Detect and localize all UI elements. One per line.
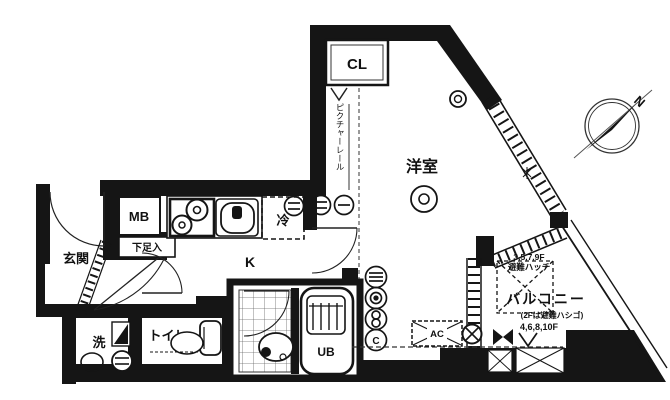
western-room-door: [312, 228, 357, 273]
laundry: 洗: [81, 322, 132, 371]
ladder-note-label: (2Fは避難ハシゴ): [521, 310, 584, 320]
closet-label: CL: [347, 56, 367, 73]
drain-symbol: [463, 325, 482, 344]
unit-bath: UB: [230, 282, 360, 378]
unit-bath-label: UB: [317, 345, 335, 359]
kitchen-label: K: [245, 254, 255, 270]
balcony-label: バルコニー: [506, 291, 586, 307]
outlet-c-label: C: [372, 336, 379, 347]
hatch-handle: [493, 329, 513, 345]
fridge-label: 冷: [276, 213, 289, 228]
sink-icon: [216, 199, 258, 236]
closet: CL: [326, 40, 388, 85]
floorplan-svg: CL ピクチャーレール 玄関: [0, 0, 670, 400]
shoe-box-label: 下足入: [132, 242, 162, 254]
washer-valve-icon: [112, 322, 130, 346]
toilet-room: トイレ: [148, 321, 221, 355]
ceiling-light-symbol: [411, 186, 437, 212]
diagonal-window: [450, 91, 566, 218]
hatch-floors-label: 3,5,7,9F: [513, 252, 544, 262]
kitchen: 冷 K: [167, 196, 304, 270]
basin-icon: [259, 333, 293, 361]
outlet-symbol: [285, 196, 354, 216]
wash-label: 洗: [92, 335, 105, 350]
bathtub-icon: [301, 288, 353, 374]
other-floors-label: 4,6,8,10F: [520, 322, 559, 332]
outlet-symbol: [112, 351, 132, 371]
hatch-arrow: [519, 333, 537, 346]
floorplan-page: CL ピクチャーレール 玄関: [0, 0, 670, 400]
stove-icon: [170, 199, 214, 236]
picture-rail-label: ピクチャーレール: [335, 103, 345, 171]
ac-label: AC: [430, 329, 444, 340]
compass-icon: N: [574, 90, 652, 158]
hatch-label: 避難ハッチ: [508, 262, 551, 272]
western-room-label: 洋室: [406, 157, 438, 176]
mb-label: MB: [129, 209, 149, 224]
genkan-label: 玄関: [63, 251, 89, 266]
ac-unit: AC: [412, 321, 482, 346]
